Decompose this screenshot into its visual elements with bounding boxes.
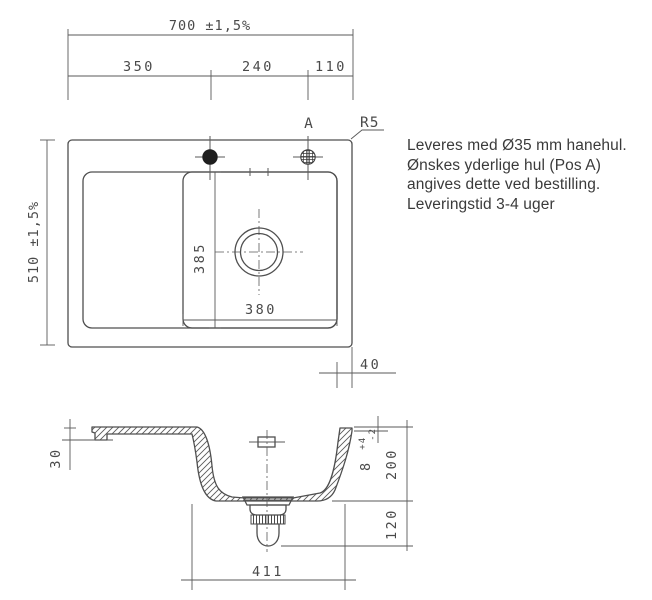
pos-a-label: A xyxy=(304,116,314,132)
delivery-note: Leveres med Ø35 mm hanehul. Ønskes yderl… xyxy=(407,136,647,214)
sink-rim-outline xyxy=(83,172,337,328)
dim-seg-240-text: 240 xyxy=(242,59,274,75)
dim-drain-clearance-text: 120 xyxy=(384,508,400,540)
drain-nut xyxy=(251,515,285,524)
dim-right-offset: 40 xyxy=(319,347,396,388)
pos-a-hole xyxy=(293,136,323,180)
drain-assembly xyxy=(243,430,293,552)
dim-bowl-width-text: 380 xyxy=(245,302,277,318)
drain-body xyxy=(250,505,286,515)
drain-top-view xyxy=(215,209,303,295)
sink-spec-sheet: 700 ±1,5% 350 240 110 510 ±1,5% xyxy=(0,0,652,600)
dim-right-offset-text: 40 xyxy=(360,357,381,373)
dim-seg-110-text: 110 xyxy=(315,59,347,75)
dim-total-width: 700 ±1,5% xyxy=(68,18,353,100)
top-view: 700 ±1,5% 350 240 110 510 ±1,5% xyxy=(26,18,396,388)
dim-seg-350-text: 350 xyxy=(123,59,155,75)
dim-bowl-bottom-width-text: 411 xyxy=(252,564,284,580)
dim-total-height: 510 ±1,5% xyxy=(26,140,55,345)
note-line: angives dette ved bestilling. xyxy=(407,175,647,195)
dim-edge-height-text: 30 xyxy=(48,447,64,468)
dim-section-depth: 200 120 xyxy=(384,420,413,551)
faucet-hole-circle xyxy=(203,150,217,164)
section-profile xyxy=(92,427,352,501)
dim-bowl-width: 380 xyxy=(183,302,337,326)
dim-rim-thickness: 8 +4 -2 xyxy=(353,416,384,471)
note-line: Leveres med Ø35 mm hanehul. xyxy=(407,136,647,156)
corner-radius-text: R5 xyxy=(360,115,379,131)
dim-bowl-depth-text: 385 xyxy=(192,242,208,274)
corner-radius-callout: R5 xyxy=(351,115,384,139)
dim-section-depth-text: 200 xyxy=(384,448,400,480)
faucet-hole xyxy=(195,136,225,180)
dim-total-width-text: 700 ±1,5% xyxy=(169,18,251,34)
dim-rim-thickness-text: 8 +4 -2 xyxy=(353,428,378,471)
technical-drawing: 700 ±1,5% 350 240 110 510 ±1,5% xyxy=(0,0,652,600)
pos-a-hole-circle xyxy=(301,150,315,164)
dim-hole-segments: 350 240 110 xyxy=(68,59,353,100)
dim-total-height-text: 510 ±1,5% xyxy=(26,201,42,283)
dim-bowl-depth: 385 xyxy=(192,172,221,328)
note-line: Ønskes yderlige hul (Pos A) xyxy=(407,156,647,176)
note-line: Leveringstid 3-4 uger xyxy=(407,195,647,215)
section-view: 30 8 +4 -2 200 120 xyxy=(48,416,413,590)
drain-cap xyxy=(257,524,279,546)
